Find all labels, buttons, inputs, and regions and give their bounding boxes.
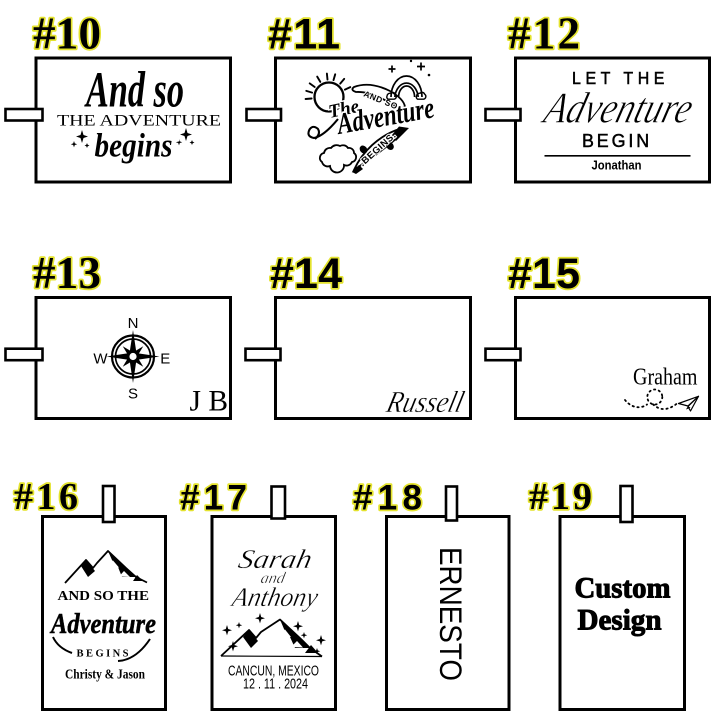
- svg-text:Adventure: Adventure: [49, 608, 156, 640]
- svg-text:Anthony: Anthony: [228, 582, 322, 612]
- svg-text:N: N: [128, 315, 139, 332]
- svg-text:#10: #10: [33, 9, 101, 59]
- svg-text:Graham: Graham: [633, 364, 698, 391]
- svg-text:#16: #16: [14, 476, 78, 518]
- svg-text:Christy & Jason: Christy & Jason: [65, 668, 145, 683]
- svg-text:#11: #11: [268, 11, 340, 59]
- svg-text:Adventure: Adventure: [537, 83, 699, 132]
- svg-text:#17: #17: [180, 479, 247, 518]
- svg-text:J B: J B: [190, 386, 229, 418]
- svg-text:Jonathan: Jonathan: [592, 158, 642, 173]
- svg-text:#12: #12: [508, 9, 580, 59]
- svg-text:Design: Design: [578, 604, 662, 637]
- svg-text:BEGIN: BEGIN: [582, 130, 652, 151]
- svg-text:W: W: [93, 351, 108, 368]
- svg-text:#14: #14: [270, 250, 342, 298]
- svg-text:E: E: [160, 351, 170, 368]
- svg-text:begins: begins: [95, 128, 173, 165]
- svg-text:And so: And so: [84, 63, 184, 119]
- svg-text:ERNESTO: ERNESTO: [433, 547, 469, 681]
- svg-text:#13: #13: [33, 248, 101, 298]
- svg-text:S: S: [128, 386, 138, 403]
- svg-text:#18: #18: [353, 479, 422, 518]
- svg-text:Custom: Custom: [575, 572, 671, 605]
- svg-text:#19: #19: [529, 476, 592, 518]
- svg-text:12 . 11 . 2024: 12 . 11 . 2024: [243, 676, 308, 693]
- svg-text:AND SO THE: AND SO THE: [58, 588, 150, 603]
- svg-text:BEGINS: BEGINS: [77, 649, 132, 660]
- svg-text:#15: #15: [508, 250, 580, 298]
- svg-text:Russell: Russell: [382, 384, 467, 418]
